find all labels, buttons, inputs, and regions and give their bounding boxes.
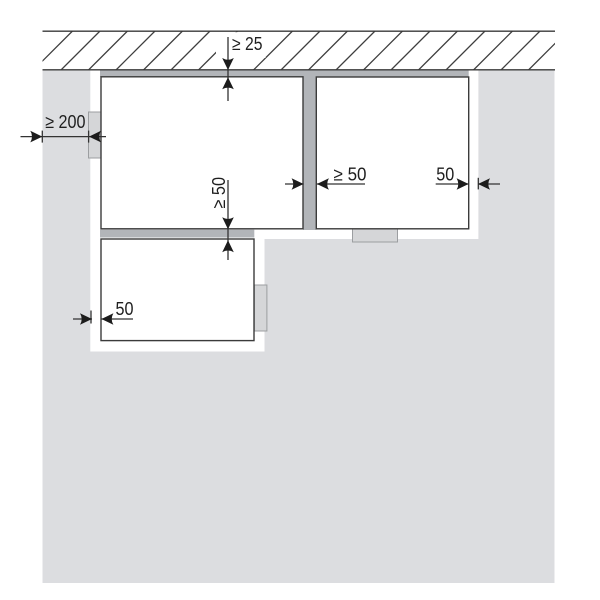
svg-text:≥ 200: ≥ 200	[45, 111, 85, 132]
svg-text:≥ 50: ≥ 50	[208, 177, 229, 209]
svg-text:≥ 25: ≥ 25	[232, 33, 263, 54]
svg-text:50: 50	[116, 298, 134, 319]
svg-text:50: 50	[436, 164, 454, 185]
svg-text:≥ 50: ≥ 50	[334, 164, 367, 185]
